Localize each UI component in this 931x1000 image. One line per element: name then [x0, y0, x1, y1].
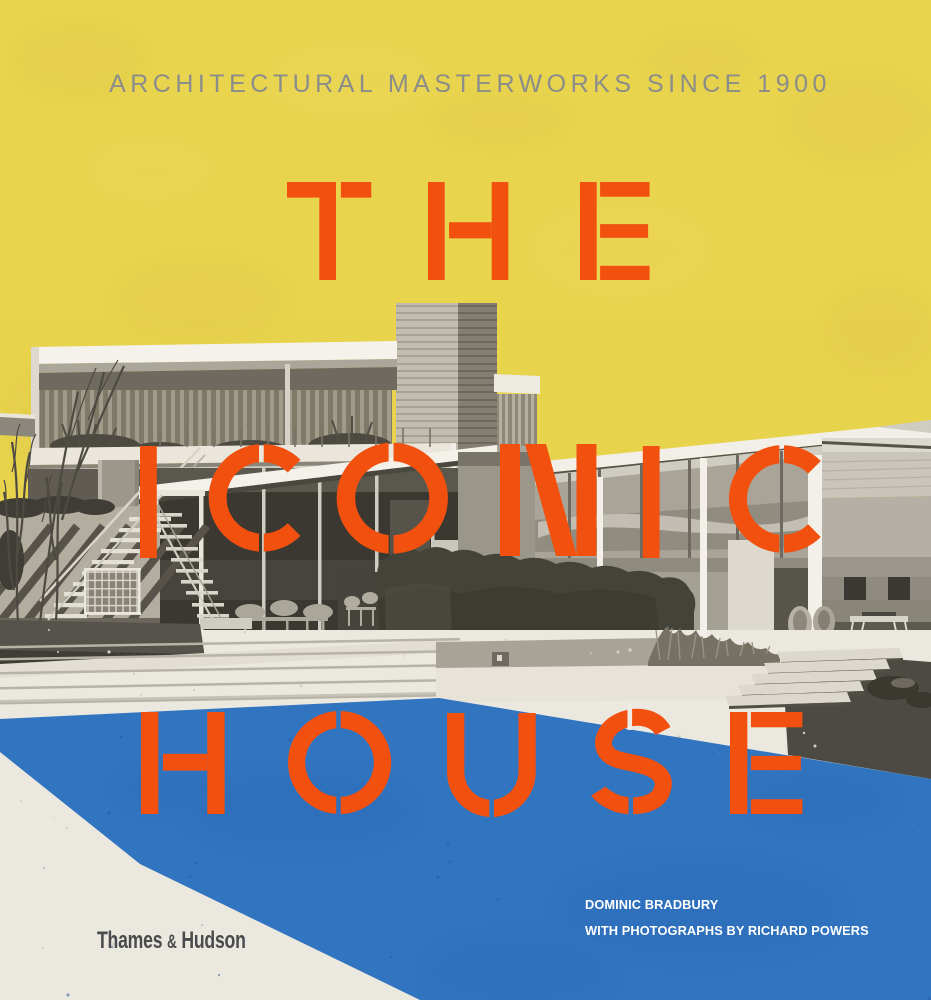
svg-text:ARCHITECTURAL MASTERWORKS SINC: ARCHITECTURAL MASTERWORKS SINCE 1900 — [109, 70, 831, 98]
svg-text:WITH PHOTOGRAPHS BY RICHARD PO: WITH PHOTOGRAPHS BY RICHARD POWERS — [585, 923, 869, 938]
svg-text:DOMINIC BRADBURY: DOMINIC BRADBURY — [585, 897, 719, 912]
svg-text:Thames & Hudson: Thames & Hudson — [97, 926, 246, 954]
